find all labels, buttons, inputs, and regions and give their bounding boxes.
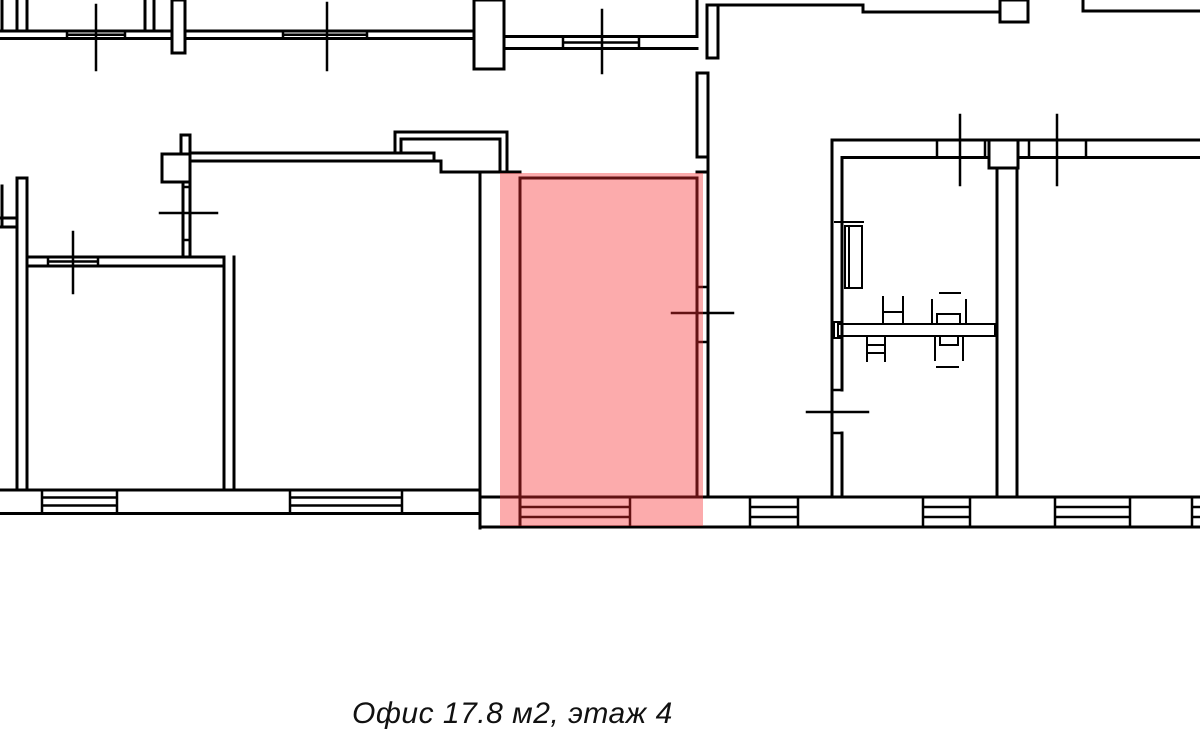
- highlighted-room-overlay[interactable]: [500, 173, 703, 526]
- sanitary-fixtures: [834, 222, 995, 367]
- floor-plan-drawing: [0, 0, 1200, 745]
- caption: Офис 17.8 м2, этаж 4: [352, 697, 673, 731]
- floor-plan: Офис 17.8 м2, этаж 4: [0, 0, 1200, 745]
- wall-blocks: [162, 0, 1028, 182]
